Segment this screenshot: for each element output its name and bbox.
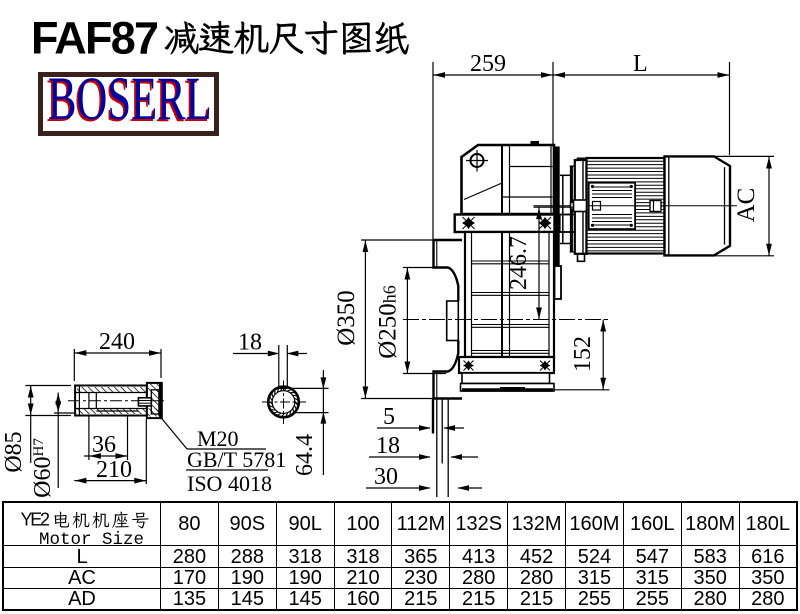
svg-text:Ø60H7: Ø60H7 [30, 438, 56, 498]
svg-text:18: 18 [376, 433, 400, 459]
svg-text:Ø250h6: Ø250h6 [375, 285, 402, 359]
svg-text:GB/T 5781: GB/T 5781 [187, 447, 286, 472]
svg-text:FAF87: FAF87 [31, 13, 159, 64]
svg-text:210: 210 [96, 457, 132, 483]
svg-text:ISO 4018: ISO 4018 [187, 471, 272, 496]
svg-text:YE2: YE2 [21, 509, 51, 529]
svg-text:259: 259 [470, 51, 506, 77]
svg-text:Ø350: Ø350 [333, 290, 360, 346]
svg-text:30: 30 [374, 464, 398, 490]
svg-text:5: 5 [383, 404, 395, 430]
svg-text:152: 152 [570, 336, 596, 372]
svg-text:240: 240 [99, 329, 135, 355]
svg-text:AC: AC [733, 188, 760, 223]
svg-text:246.7: 246.7 [506, 236, 532, 290]
svg-text:Motor Size: Motor Size [39, 530, 144, 545]
svg-text:18: 18 [238, 330, 262, 356]
svg-text:64.4: 64.4 [292, 434, 318, 476]
svg-text:Ø85: Ø85 [1, 431, 27, 472]
svg-text:36: 36 [92, 432, 116, 458]
svg-text:L: L [633, 51, 648, 77]
